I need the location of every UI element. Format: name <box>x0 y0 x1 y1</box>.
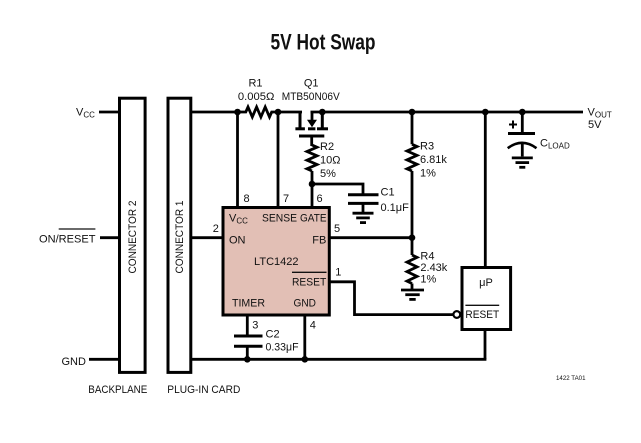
svg-text:0.005Ω: 0.005Ω <box>238 91 275 103</box>
svg-text:GND: GND <box>62 356 87 368</box>
svg-text:PLUG-IN CARD: PLUG-IN CARD <box>167 384 240 396</box>
svg-text:2: 2 <box>213 223 219 235</box>
svg-text:5V Hot Swap: 5V Hot Swap <box>271 29 376 54</box>
svg-text:RESET: RESET <box>465 309 499 321</box>
svg-text:3: 3 <box>252 319 258 331</box>
svg-text:ON/RESET: ON/RESET <box>39 234 96 246</box>
svg-text:6: 6 <box>317 193 323 205</box>
svg-text:5V: 5V <box>588 119 602 131</box>
svg-text:8: 8 <box>244 193 250 205</box>
svg-text:R4: R4 <box>420 250 434 262</box>
svg-text:LTC1422: LTC1422 <box>254 256 299 268</box>
svg-text:C2: C2 <box>266 329 280 341</box>
svg-text:4: 4 <box>310 319 316 331</box>
svg-text:μP: μP <box>479 277 493 289</box>
svg-text:GND: GND <box>294 298 317 310</box>
svg-text:2.43k: 2.43k <box>420 262 447 274</box>
svg-text:C1: C1 <box>381 187 395 199</box>
svg-text:10Ω: 10Ω <box>320 155 340 167</box>
svg-text:1%: 1% <box>420 274 436 286</box>
svg-text:1: 1 <box>335 267 341 279</box>
svg-text:7: 7 <box>283 193 289 205</box>
svg-text:RESET: RESET <box>292 276 327 288</box>
svg-text:TIMER: TIMER <box>232 298 265 310</box>
svg-text:6.81k: 6.81k <box>420 154 447 166</box>
svg-text:0.1μF: 0.1μF <box>381 202 410 214</box>
svg-text:MTB50N06V: MTB50N06V <box>282 91 341 103</box>
svg-text:R2: R2 <box>320 141 334 153</box>
svg-text:R1: R1 <box>248 78 262 90</box>
svg-text:ON: ON <box>229 235 246 247</box>
svg-text:1422 TA01: 1422 TA01 <box>556 375 586 382</box>
svg-text:5: 5 <box>334 223 340 235</box>
svg-text:0.33μF: 0.33μF <box>266 342 299 354</box>
svg-text:CONNECTOR 2: CONNECTOR 2 <box>127 201 139 274</box>
svg-text:SENSE: SENSE <box>262 213 297 225</box>
svg-text:GATE: GATE <box>300 213 327 225</box>
svg-text:5%: 5% <box>320 168 336 180</box>
svg-text:CONNECTOR 1: CONNECTOR 1 <box>174 201 186 274</box>
svg-text:R3: R3 <box>420 141 434 153</box>
svg-text:Q1: Q1 <box>304 78 319 90</box>
svg-text:1%: 1% <box>420 168 436 180</box>
svg-text:BACKPLANE: BACKPLANE <box>88 384 147 396</box>
svg-text:FB: FB <box>312 235 326 247</box>
